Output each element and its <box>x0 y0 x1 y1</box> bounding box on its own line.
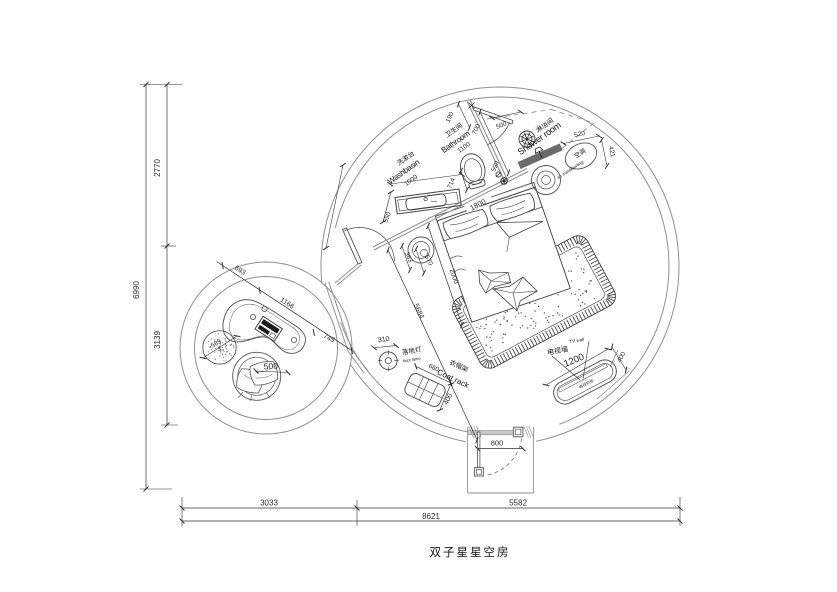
svg-text:双子星星空房: 双子星星空房 <box>430 545 511 559</box>
svg-text:6990: 6990 <box>132 281 141 299</box>
svg-text:800: 800 <box>491 439 504 448</box>
svg-text:5582: 5582 <box>509 499 527 508</box>
svg-text:2770: 2770 <box>153 159 162 177</box>
svg-text:500: 500 <box>263 361 278 372</box>
svg-text:3139: 3139 <box>153 331 162 349</box>
svg-text:8621: 8621 <box>422 512 440 521</box>
svg-text:3033: 3033 <box>260 499 278 508</box>
